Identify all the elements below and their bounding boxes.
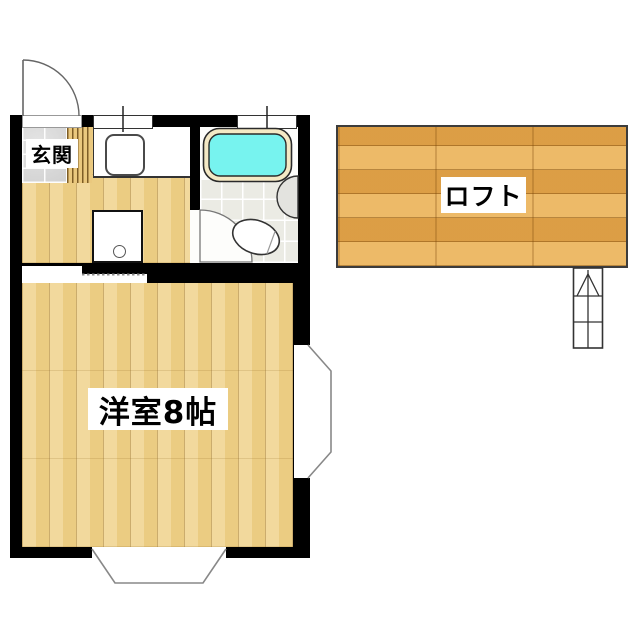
bottom-bay-window [92,549,226,583]
entrance-label: 玄関 [26,139,78,168]
floor-plan: 玄関 洋室8帖 ロフト [0,0,640,640]
side-bay-window [308,345,331,478]
fixtures-overlay [0,0,640,640]
bathtub-water [209,134,286,176]
loft-label: ロフト [441,177,526,213]
washbasin [277,176,298,218]
main-room-label: 洋室8帖 [88,388,228,430]
loft-ladder [573,268,603,348]
entrance-door-arc [23,60,79,116]
